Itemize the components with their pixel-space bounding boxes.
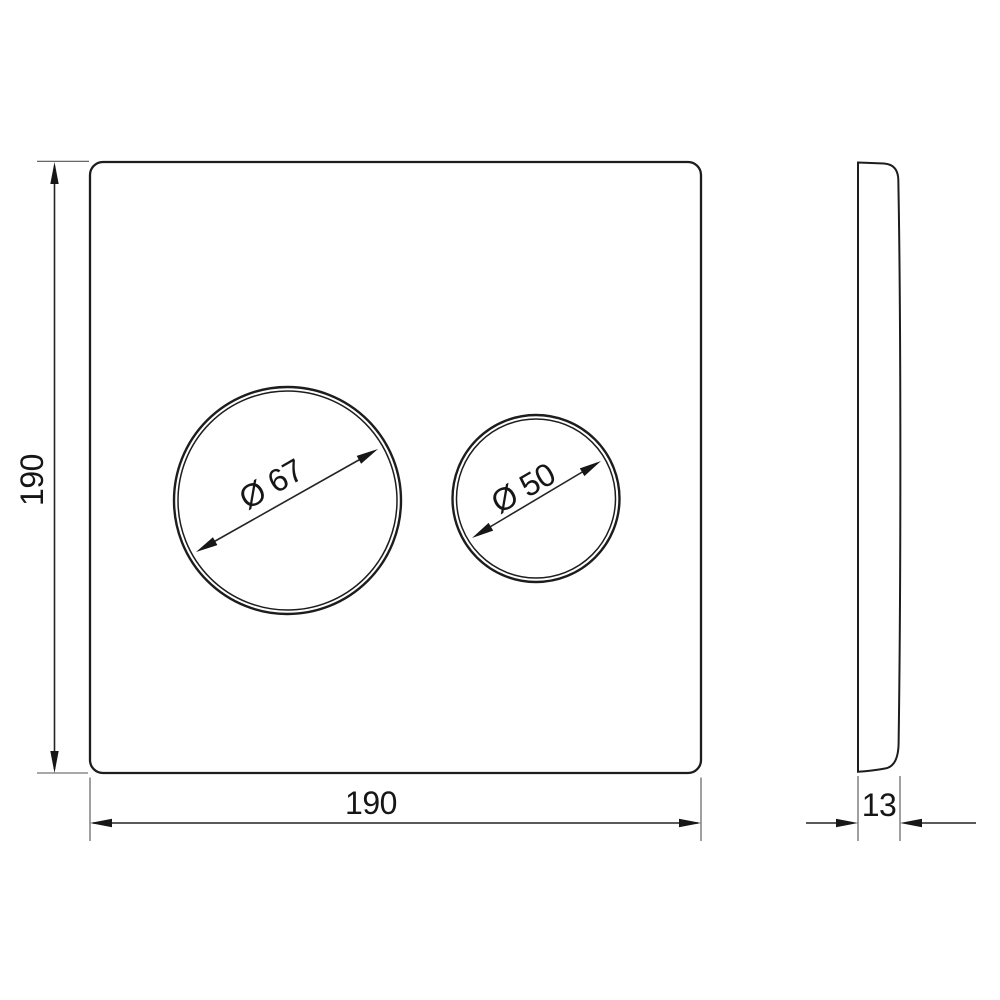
dim-label-plate-width: 190	[345, 787, 397, 819]
arrowhead-height-bottom	[50, 751, 58, 773]
dim-label-plate-height: 190	[16, 454, 48, 506]
technical-drawing-canvas: 190 190 13 Ø 67 Ø 50	[0, 0, 1000, 1000]
arrowhead-thickness-right	[900, 819, 922, 827]
dim-label-plate-thickness: 13	[862, 789, 897, 821]
arrowhead-width-right	[679, 819, 701, 827]
arrowhead-height-top	[50, 162, 58, 184]
arrowhead-thickness-left	[836, 819, 858, 827]
arrowhead-width-left	[90, 819, 112, 827]
plate-side-profile-outline	[858, 163, 900, 772]
